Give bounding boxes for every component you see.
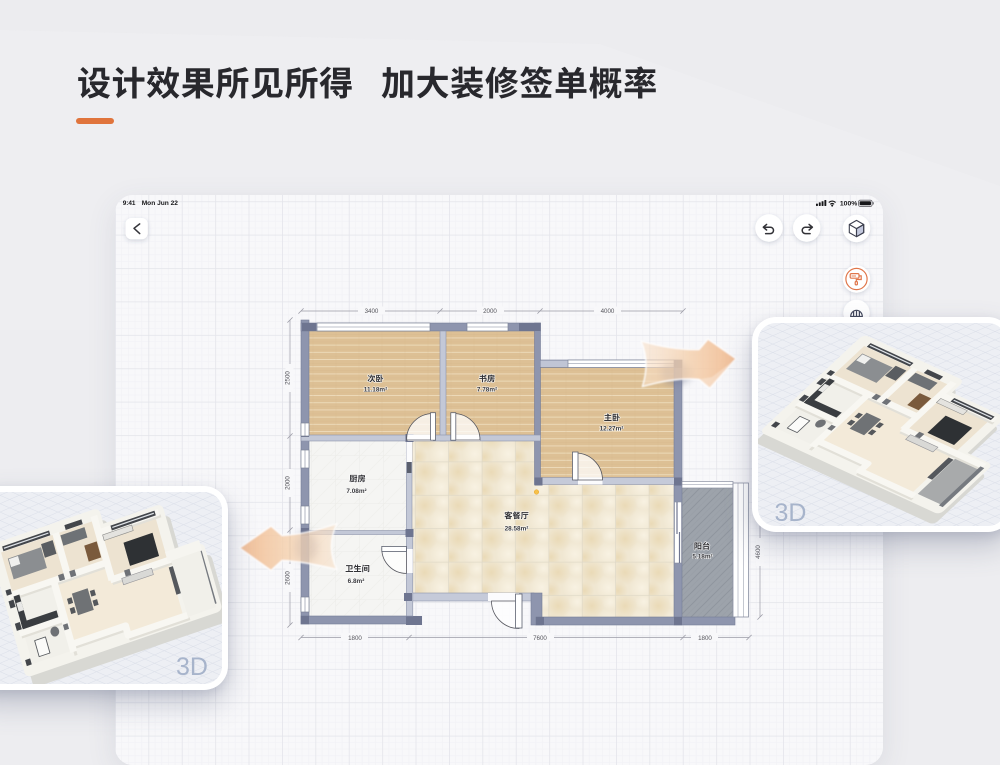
svg-text:6.8m²: 6.8m²: [348, 578, 365, 585]
svg-text:2600: 2600: [285, 571, 292, 585]
svg-text:3D: 3D: [775, 499, 807, 526]
svg-text:2000: 2000: [483, 308, 497, 315]
svg-text:28.58m²: 28.58m²: [505, 526, 529, 533]
svg-text:4000: 4000: [601, 308, 615, 315]
svg-text:7600: 7600: [533, 635, 547, 642]
svg-text:3400: 3400: [365, 308, 379, 315]
svg-text:100%: 100%: [840, 200, 857, 207]
svg-text:5.18m²: 5.18m²: [692, 554, 712, 561]
svg-text:Mon Jun 22: Mon Jun 22: [142, 200, 179, 207]
svg-text:1800: 1800: [698, 635, 712, 642]
svg-text:3D: 3D: [176, 653, 208, 681]
svg-text:12.27m²: 12.27m²: [600, 426, 624, 433]
svg-text:1800: 1800: [348, 635, 362, 642]
svg-text:4600: 4600: [755, 545, 762, 559]
svg-text:7.08m²: 7.08m²: [346, 488, 366, 495]
svg-text:2500: 2500: [285, 371, 292, 385]
svg-text:2000: 2000: [285, 476, 292, 490]
svg-text:11.18m²: 11.18m²: [364, 387, 387, 394]
svg-text:7.78m²: 7.78m²: [477, 387, 497, 394]
svg-text:9:41: 9:41: [123, 200, 136, 207]
